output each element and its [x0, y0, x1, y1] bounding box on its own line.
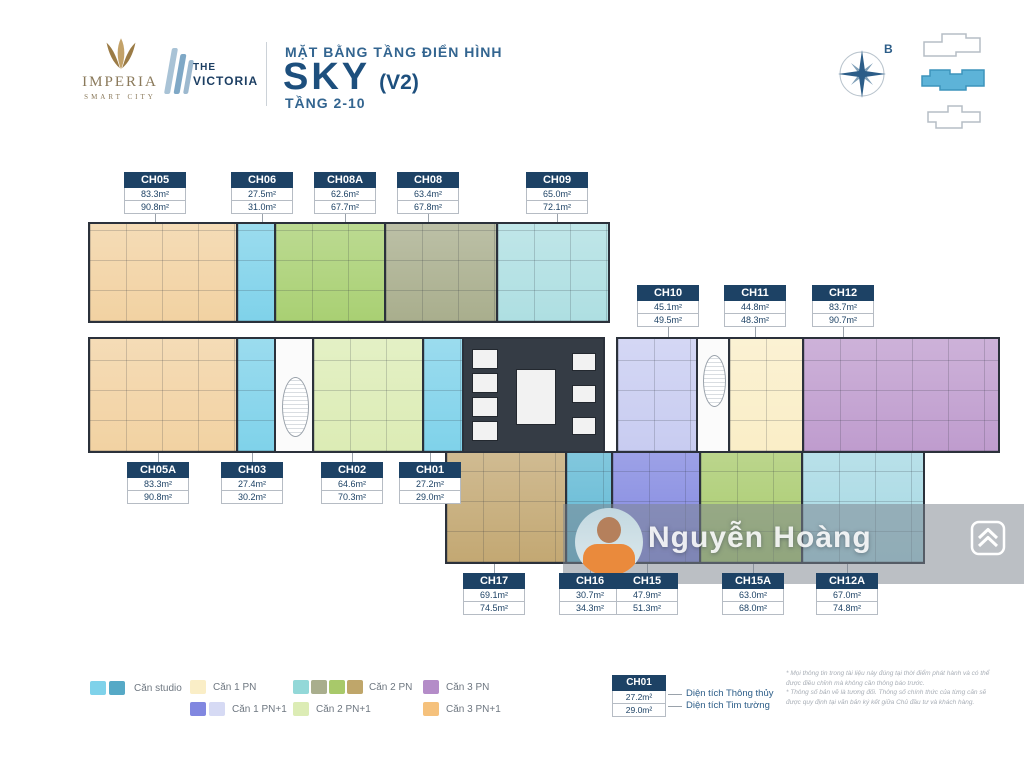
imperia-wordmark: IMPERIA — [82, 74, 158, 91]
unit-area-tm: 90.7m² — [812, 314, 874, 327]
avatar-torso — [583, 544, 635, 576]
legend-label-studio: Căn studio — [134, 683, 182, 694]
legend-swatch-2pn-2 — [311, 680, 327, 694]
watermark-avatar — [575, 508, 643, 576]
unit-id: CH03 — [221, 462, 283, 478]
key-label-tim-tuong: Diện tích Tim tường — [686, 700, 770, 711]
legend-swatch-2pn1 — [293, 702, 309, 716]
key-area-tm: 29.0m² — [612, 704, 666, 717]
floorplan-page: IMPERIA SMART CITY THE VICTORIA MẶT BẰNG… — [0, 0, 1024, 768]
legend-label-2pn: Căn 2 PN — [369, 682, 412, 693]
floor-range: TẦNG 2-10 — [285, 95, 366, 111]
leader-line — [252, 453, 253, 462]
lobby-cell — [516, 369, 556, 425]
unit-area-tm: 48.3m² — [724, 314, 786, 327]
unit-id: CH08A — [314, 172, 376, 188]
unit-id: CH06 — [231, 172, 293, 188]
unit-label-ch16: CH16 30.7m² 34.3m² — [559, 573, 621, 615]
unit-id: CH16 — [559, 573, 621, 589]
unit-area-tm: 67.7m² — [314, 201, 376, 214]
leader-line — [755, 326, 756, 337]
unit-area-tm: 90.8m² — [124, 201, 186, 214]
unit-area-tm: 70.3m² — [321, 491, 383, 504]
unit-area-tm: 74.5m² — [463, 602, 525, 615]
leader-line — [843, 326, 844, 337]
leader-line — [428, 213, 429, 222]
key-dash-line — [668, 694, 682, 695]
keyplan-building-top — [922, 30, 984, 58]
keyplan-building-bottom — [922, 102, 984, 132]
elevator-cell — [572, 417, 596, 435]
unit-area-tt: 62.6m² — [314, 188, 376, 201]
unit-id: CH12A — [816, 573, 878, 589]
unit-shape-ch06 — [236, 222, 276, 323]
avatar-head — [597, 517, 621, 543]
page-title: SKY (V2) — [283, 56, 419, 99]
area-key-box: CH01 27.2m² 29.0m² — [612, 675, 666, 717]
keyplan-building-highlighted — [920, 62, 986, 96]
disclaimer: * Mọi thông tin trong tài liệu này đúng … — [786, 669, 1014, 707]
legend-swatch-2pn-1 — [293, 680, 309, 694]
leader-line — [557, 213, 558, 222]
unit-label-ch15: CH15 47.9m² 51.3m² — [616, 573, 678, 615]
unit-label-ch05a: CH05A 83.3m² 90.8m² — [127, 462, 189, 504]
unit-shape-ch17 — [445, 451, 567, 564]
disclaimer-line: * Thông số bản vẽ là tương đối. Thông số… — [786, 688, 1014, 698]
elevator-cell — [472, 349, 498, 369]
legend-label-1pn: Căn 1 PN — [213, 682, 256, 693]
legend-label-3pn1: Căn 3 PN+1 — [446, 704, 501, 715]
watermark-name: Nguyễn Hoàng — [648, 521, 872, 555]
stair-oval — [703, 355, 726, 407]
unit-shape-ch11 — [728, 337, 804, 453]
unit-area-tt: 27.2m² — [399, 478, 461, 491]
header-divider — [266, 42, 267, 106]
unit-area-tt: 27.5m² — [231, 188, 293, 201]
unit-area-tm: 34.3m² — [559, 602, 621, 615]
unit-shape-ch05a — [88, 337, 238, 453]
unit-area-tt: 83.3m² — [124, 188, 186, 201]
unit-id: CH11 — [724, 285, 786, 301]
leader-line — [494, 564, 495, 573]
unit-area-tt: 83.3m² — [127, 478, 189, 491]
elevator-cell — [472, 397, 498, 417]
unit-area-tm: 51.3m² — [616, 602, 678, 615]
unit-area-tt: 45.1m² — [637, 301, 699, 314]
unit-area-tt: 64.6m² — [321, 478, 383, 491]
leader-line — [352, 453, 353, 462]
unit-label-ch09: CH09 65.0m² 72.1m² — [526, 172, 588, 214]
unit-shape-ch09 — [496, 222, 610, 323]
stair-core — [696, 337, 730, 453]
legend-label-2pn1: Căn 2 PN+1 — [316, 704, 371, 715]
unit-area-tt: 47.9m² — [616, 589, 678, 602]
unit-area-tt: 44.8m² — [724, 301, 786, 314]
unit-label-ch05: CH05 83.3m² 90.8m² — [124, 172, 186, 214]
legend-swatch-2pn-3 — [329, 680, 345, 694]
unit-shape-ch12 — [802, 337, 1000, 453]
legend-swatch-3pn1 — [423, 702, 439, 716]
unit-id: CH10 — [637, 285, 699, 301]
elevator-cell — [472, 373, 498, 393]
unit-id: CH05 — [124, 172, 186, 188]
unit-area-tt: 83.7m² — [812, 301, 874, 314]
unit-id: CH02 — [321, 462, 383, 478]
unit-label-ch02: CH02 64.6m² 70.3m² — [321, 462, 383, 504]
unit-id: CH15 — [616, 573, 678, 589]
key-dash-line — [668, 706, 682, 707]
disclaimer-line: được quy định tại văn bản ký kết giữa Ch… — [786, 698, 1014, 708]
elevator-cell — [572, 353, 596, 371]
unit-id: CH09 — [526, 172, 588, 188]
elevator-cell — [472, 421, 498, 441]
legend-swatch-2pn-4 — [347, 680, 363, 694]
unit-area-tm: 30.2m² — [221, 491, 283, 504]
unit-label-ch03: CH03 27.4m² 30.2m² — [221, 462, 283, 504]
legend-swatch-3pn — [423, 680, 439, 694]
unit-shape-ch10 — [616, 337, 698, 453]
unit-id: CH08 — [397, 172, 459, 188]
unit-shape-ch08 — [384, 222, 498, 323]
unit-area-tt: 63.0m² — [722, 589, 784, 602]
unit-label-ch08a: CH08A 62.6m² 67.7m² — [314, 172, 376, 214]
disclaimer-line: được điều chỉnh mà không cần thông báo t… — [786, 679, 1014, 689]
unit-id: CH17 — [463, 573, 525, 589]
unit-label-ch12a: CH12A 67.0m² 74.8m² — [816, 573, 878, 615]
unit-id: CH15A — [722, 573, 784, 589]
leader-line — [262, 213, 263, 222]
unit-label-ch06: CH06 27.5m² 31.0m² — [231, 172, 293, 214]
elevator-cell — [572, 385, 596, 403]
key-label-thong-thuy: Diện tích Thông thủy — [686, 688, 774, 699]
legend-label-1pn1: Căn 1 PN+1 — [232, 704, 287, 715]
title-variant: (V2) — [379, 71, 419, 95]
disclaimer-line: * Mọi thông tin trong tài liệu này đúng … — [786, 669, 1014, 679]
unit-area-tt: 65.0m² — [526, 188, 588, 201]
title-main: SKY — [283, 56, 370, 99]
unit-label-ch08: CH08 63.4m² 67.8m² — [397, 172, 459, 214]
unit-label-ch17: CH17 69.1m² 74.5m² — [463, 573, 525, 615]
unit-shape-ch01 — [422, 337, 464, 453]
north-label: B — [884, 42, 893, 56]
stair-core — [274, 337, 314, 453]
unit-area-tm: 67.8m² — [397, 201, 459, 214]
legend-swatch-1pn1-1 — [190, 702, 206, 716]
victoria-wordmark-top: THE — [193, 62, 216, 73]
leader-line — [430, 453, 431, 462]
unit-shape-ch08a — [274, 222, 386, 323]
key-area-tt: 27.2m² — [612, 691, 666, 704]
legend-swatch-1pn — [190, 680, 206, 694]
unit-area-tt: 30.7m² — [559, 589, 621, 602]
unit-area-tm: 72.1m² — [526, 201, 588, 214]
unit-label-ch12: CH12 83.7m² 90.7m² — [812, 285, 874, 327]
leader-line — [158, 453, 159, 462]
imperia-tagline: SMART CITY — [82, 93, 158, 101]
unit-area-tt: 27.4m² — [221, 478, 283, 491]
unit-area-tt: 63.4m² — [397, 188, 459, 201]
unit-area-tm: 31.0m² — [231, 201, 293, 214]
unit-area-tt: 67.0m² — [816, 589, 878, 602]
stair-oval — [282, 377, 309, 437]
unit-label-ch15a: CH15A 63.0m² 68.0m² — [722, 573, 784, 615]
home-logo-icon — [970, 520, 1006, 556]
victoria-wordmark: VICTORIA — [193, 74, 258, 88]
unit-area-tt: 69.1m² — [463, 589, 525, 602]
unit-area-tm: 29.0m² — [399, 491, 461, 504]
key-unit-id: CH01 — [612, 675, 666, 691]
legend-label-3pn: Căn 3 PN — [446, 682, 489, 693]
unit-shape-ch05 — [88, 222, 238, 323]
unit-shape-ch03 — [236, 337, 276, 453]
elevator-core — [462, 337, 605, 453]
unit-id: CH05A — [127, 462, 189, 478]
compass-icon — [836, 48, 888, 100]
unit-area-tm: 49.5m² — [637, 314, 699, 327]
imperia-logo-icon — [98, 36, 144, 76]
legend-swatch-1pn1-2 — [209, 702, 225, 716]
unit-label-ch01: CH01 27.2m² 29.0m² — [399, 462, 461, 504]
unit-id: CH12 — [812, 285, 874, 301]
unit-label-ch10: CH10 45.1m² 49.5m² — [637, 285, 699, 327]
leader-line — [345, 213, 346, 222]
legend-swatch-studio-2 — [109, 681, 125, 695]
unit-shape-ch02 — [312, 337, 424, 453]
unit-area-tm: 68.0m² — [722, 602, 784, 615]
unit-label-ch11: CH11 44.8m² 48.3m² — [724, 285, 786, 327]
unit-id: CH01 — [399, 462, 461, 478]
leader-line — [155, 213, 156, 222]
unit-area-tm: 90.8m² — [127, 491, 189, 504]
unit-area-tm: 74.8m² — [816, 602, 878, 615]
legend-swatch-studio-1 — [90, 681, 106, 695]
leader-line — [668, 326, 669, 337]
